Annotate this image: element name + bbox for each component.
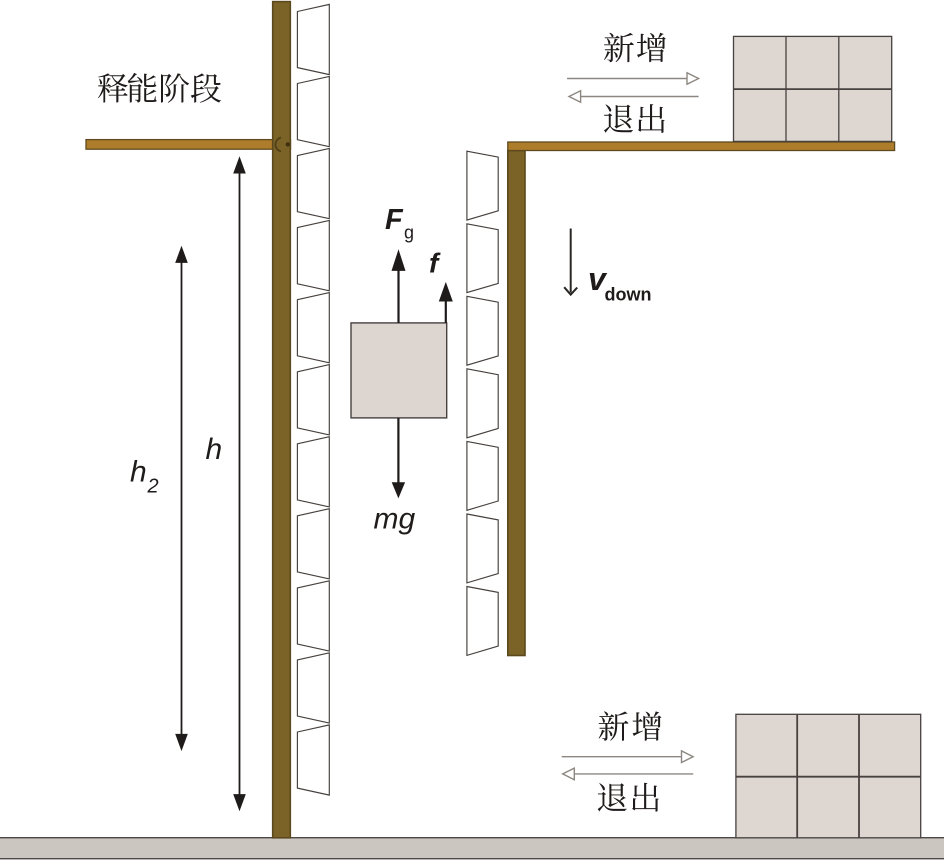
svg-text:2: 2 <box>147 476 159 498</box>
svg-text:F: F <box>385 204 404 236</box>
svg-text:g: g <box>404 223 414 243</box>
svg-text:mg: mg <box>374 503 416 536</box>
svg-text:down: down <box>605 285 652 305</box>
svg-text:h: h <box>206 433 223 466</box>
svg-text:h: h <box>130 456 147 489</box>
